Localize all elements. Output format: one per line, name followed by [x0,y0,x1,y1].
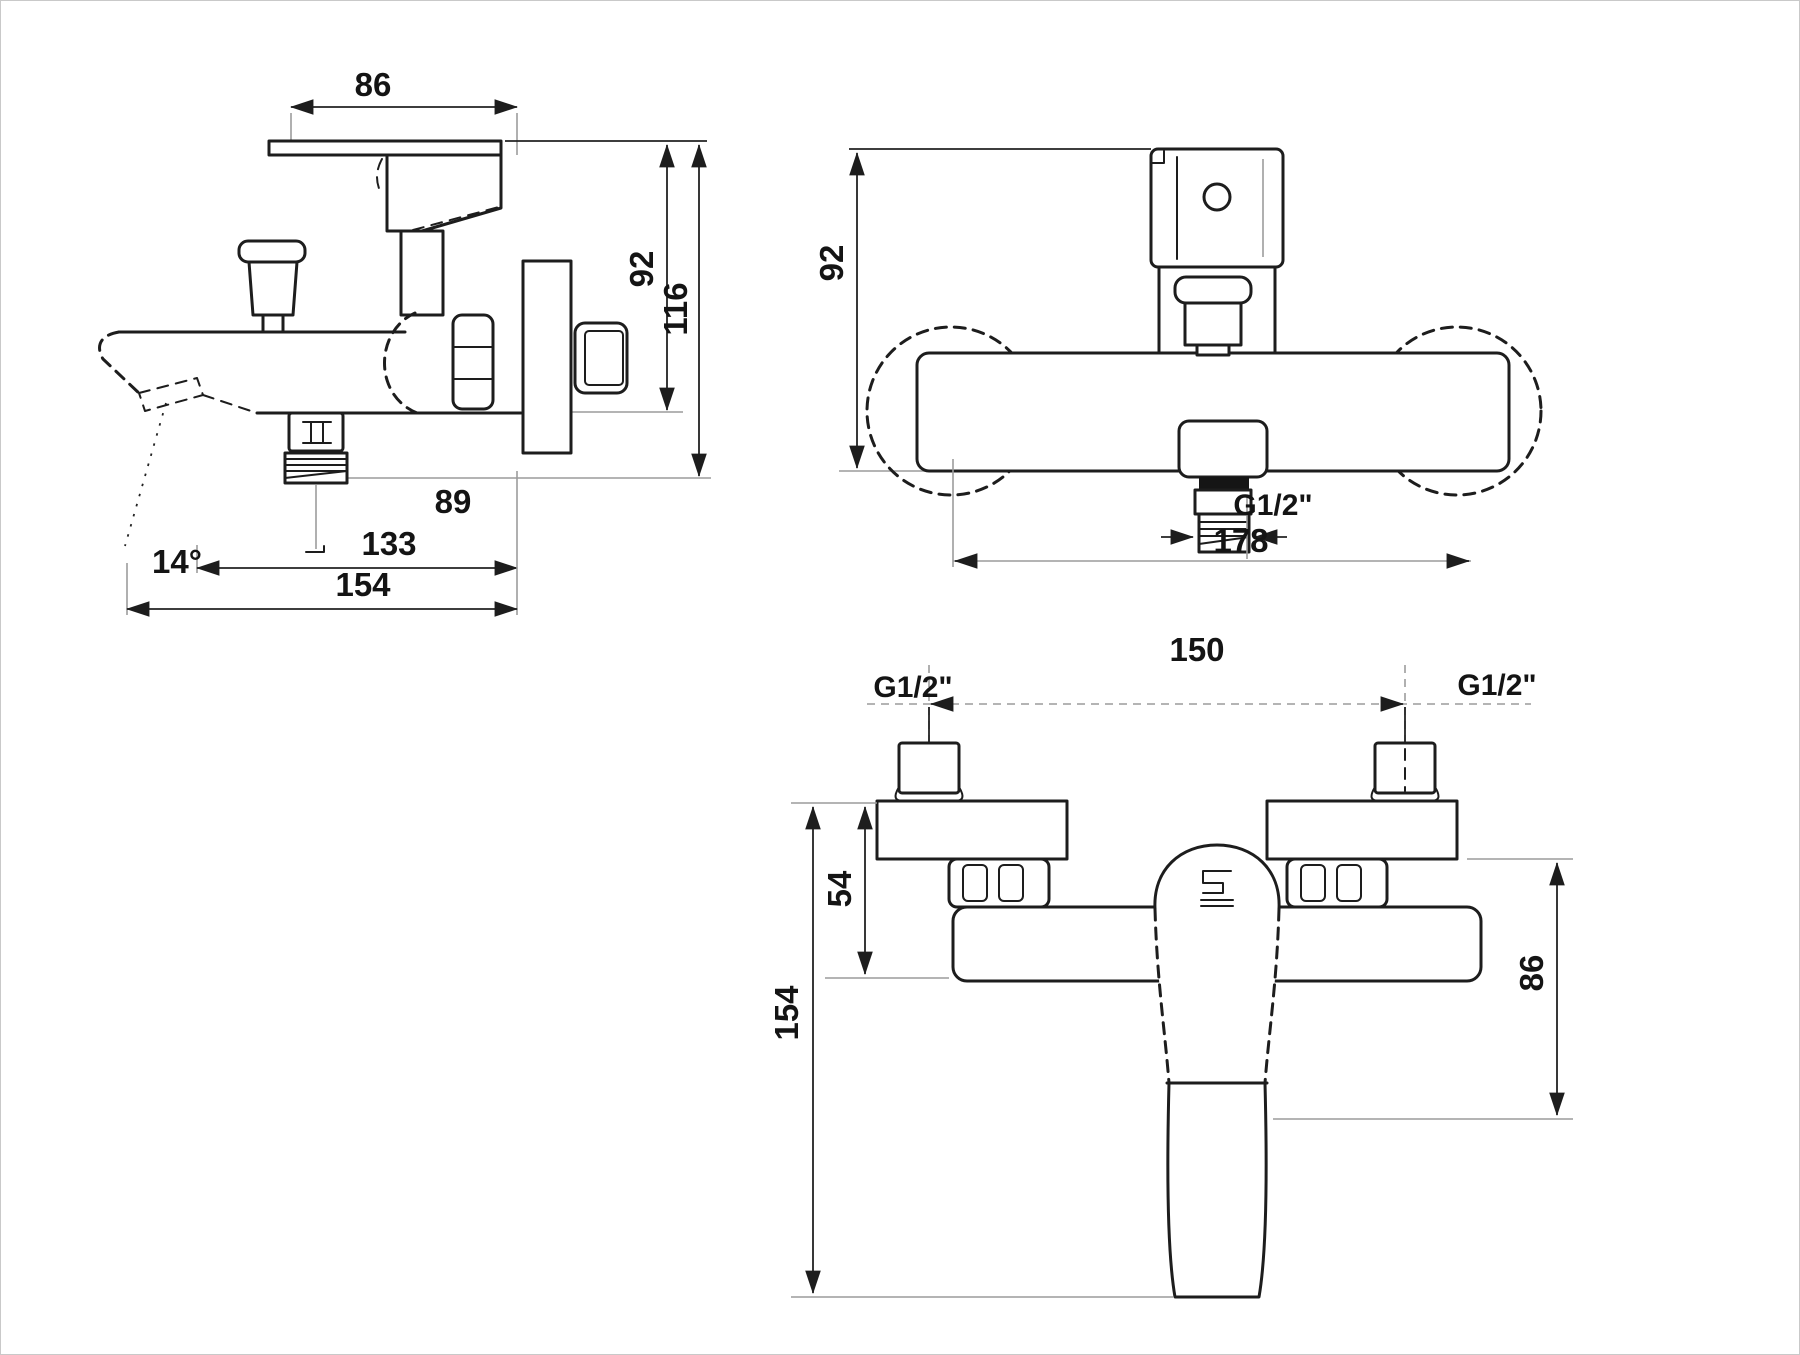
wall-nipple-side [575,323,627,393]
dim-label-178-front: 178 [1213,522,1268,559]
bottom-handle [1155,845,1279,1297]
dim-label-86-side: 86 [355,66,392,103]
handle-fill [1155,845,1279,1297]
front-diverter-stem [1175,277,1251,355]
outlet-connector [289,413,343,451]
inlet-pipe-left [899,743,959,793]
dim-label-154-bottom: 154 [768,985,805,1041]
front-view: 92 [813,149,1541,567]
thread-label-bottom-left: G1/2" [873,671,952,704]
outlet-centerline-tick [306,546,324,552]
dim-label-92-front: 92 [813,245,850,282]
dim-side-total-height: 116 [313,145,711,478]
dim-label-92-side: 92 [623,251,660,288]
diverter-knob-stem [263,315,283,332]
dim-spout-angle: 14° [125,403,202,580]
union-nut [453,315,493,409]
lever-handle-blade [269,141,501,155]
dim-label-54: 54 [821,870,858,907]
bottom-view: 150 G1/2" G1/2" [768,631,1573,1297]
stem-neck [1197,345,1229,355]
inlet-assembly-right [1267,743,1457,907]
eccentric-flange-left [877,801,1067,859]
faucet-dimension-drawing: 86 92 116 89 133 154 [1,1,1800,1355]
side-view: 86 92 116 89 133 154 [100,66,711,615]
dim-label-154-side: 154 [335,566,391,603]
eccentric-flange-right [1267,801,1457,859]
technical-drawing-sheet: 86 92 116 89 133 154 [0,0,1800,1355]
stem-cap [1175,277,1251,303]
dim-label-14deg: 14° [152,543,202,580]
spout-underside-dash [203,395,257,413]
wall-escutcheon-side [523,261,571,453]
dim-label-150: 150 [1169,631,1224,668]
stem-cylinder [1185,303,1241,345]
thread-label-front: G1/2" [1233,489,1312,522]
thread-label-bottom-right: G1/2" [1457,669,1536,702]
dim-label-89-side: 89 [435,483,472,520]
dim-inlet-spacing: 150 G1/2" G1/2" [867,631,1537,749]
diverter-knob-body [249,262,297,315]
dim-label-86-bottom: 86 [1513,955,1550,992]
lever-pivot-arc [377,159,382,195]
diverter-knob-cap [239,241,305,262]
spout-aerator [139,378,203,411]
dim-label-116-side: 116 [657,282,694,335]
dim-label-133-side: 133 [361,525,416,562]
spout-tip-outline [100,332,141,395]
cartridge-neck [401,231,443,315]
diverter-block [1179,421,1267,477]
mounting-screw-hole [1204,184,1230,210]
lever-body-block [387,155,501,231]
ball-joint-arc [385,313,418,413]
inlet-assembly-left [877,743,1067,907]
outlet-thread [285,453,347,483]
side-view-faucet-body [100,141,627,552]
